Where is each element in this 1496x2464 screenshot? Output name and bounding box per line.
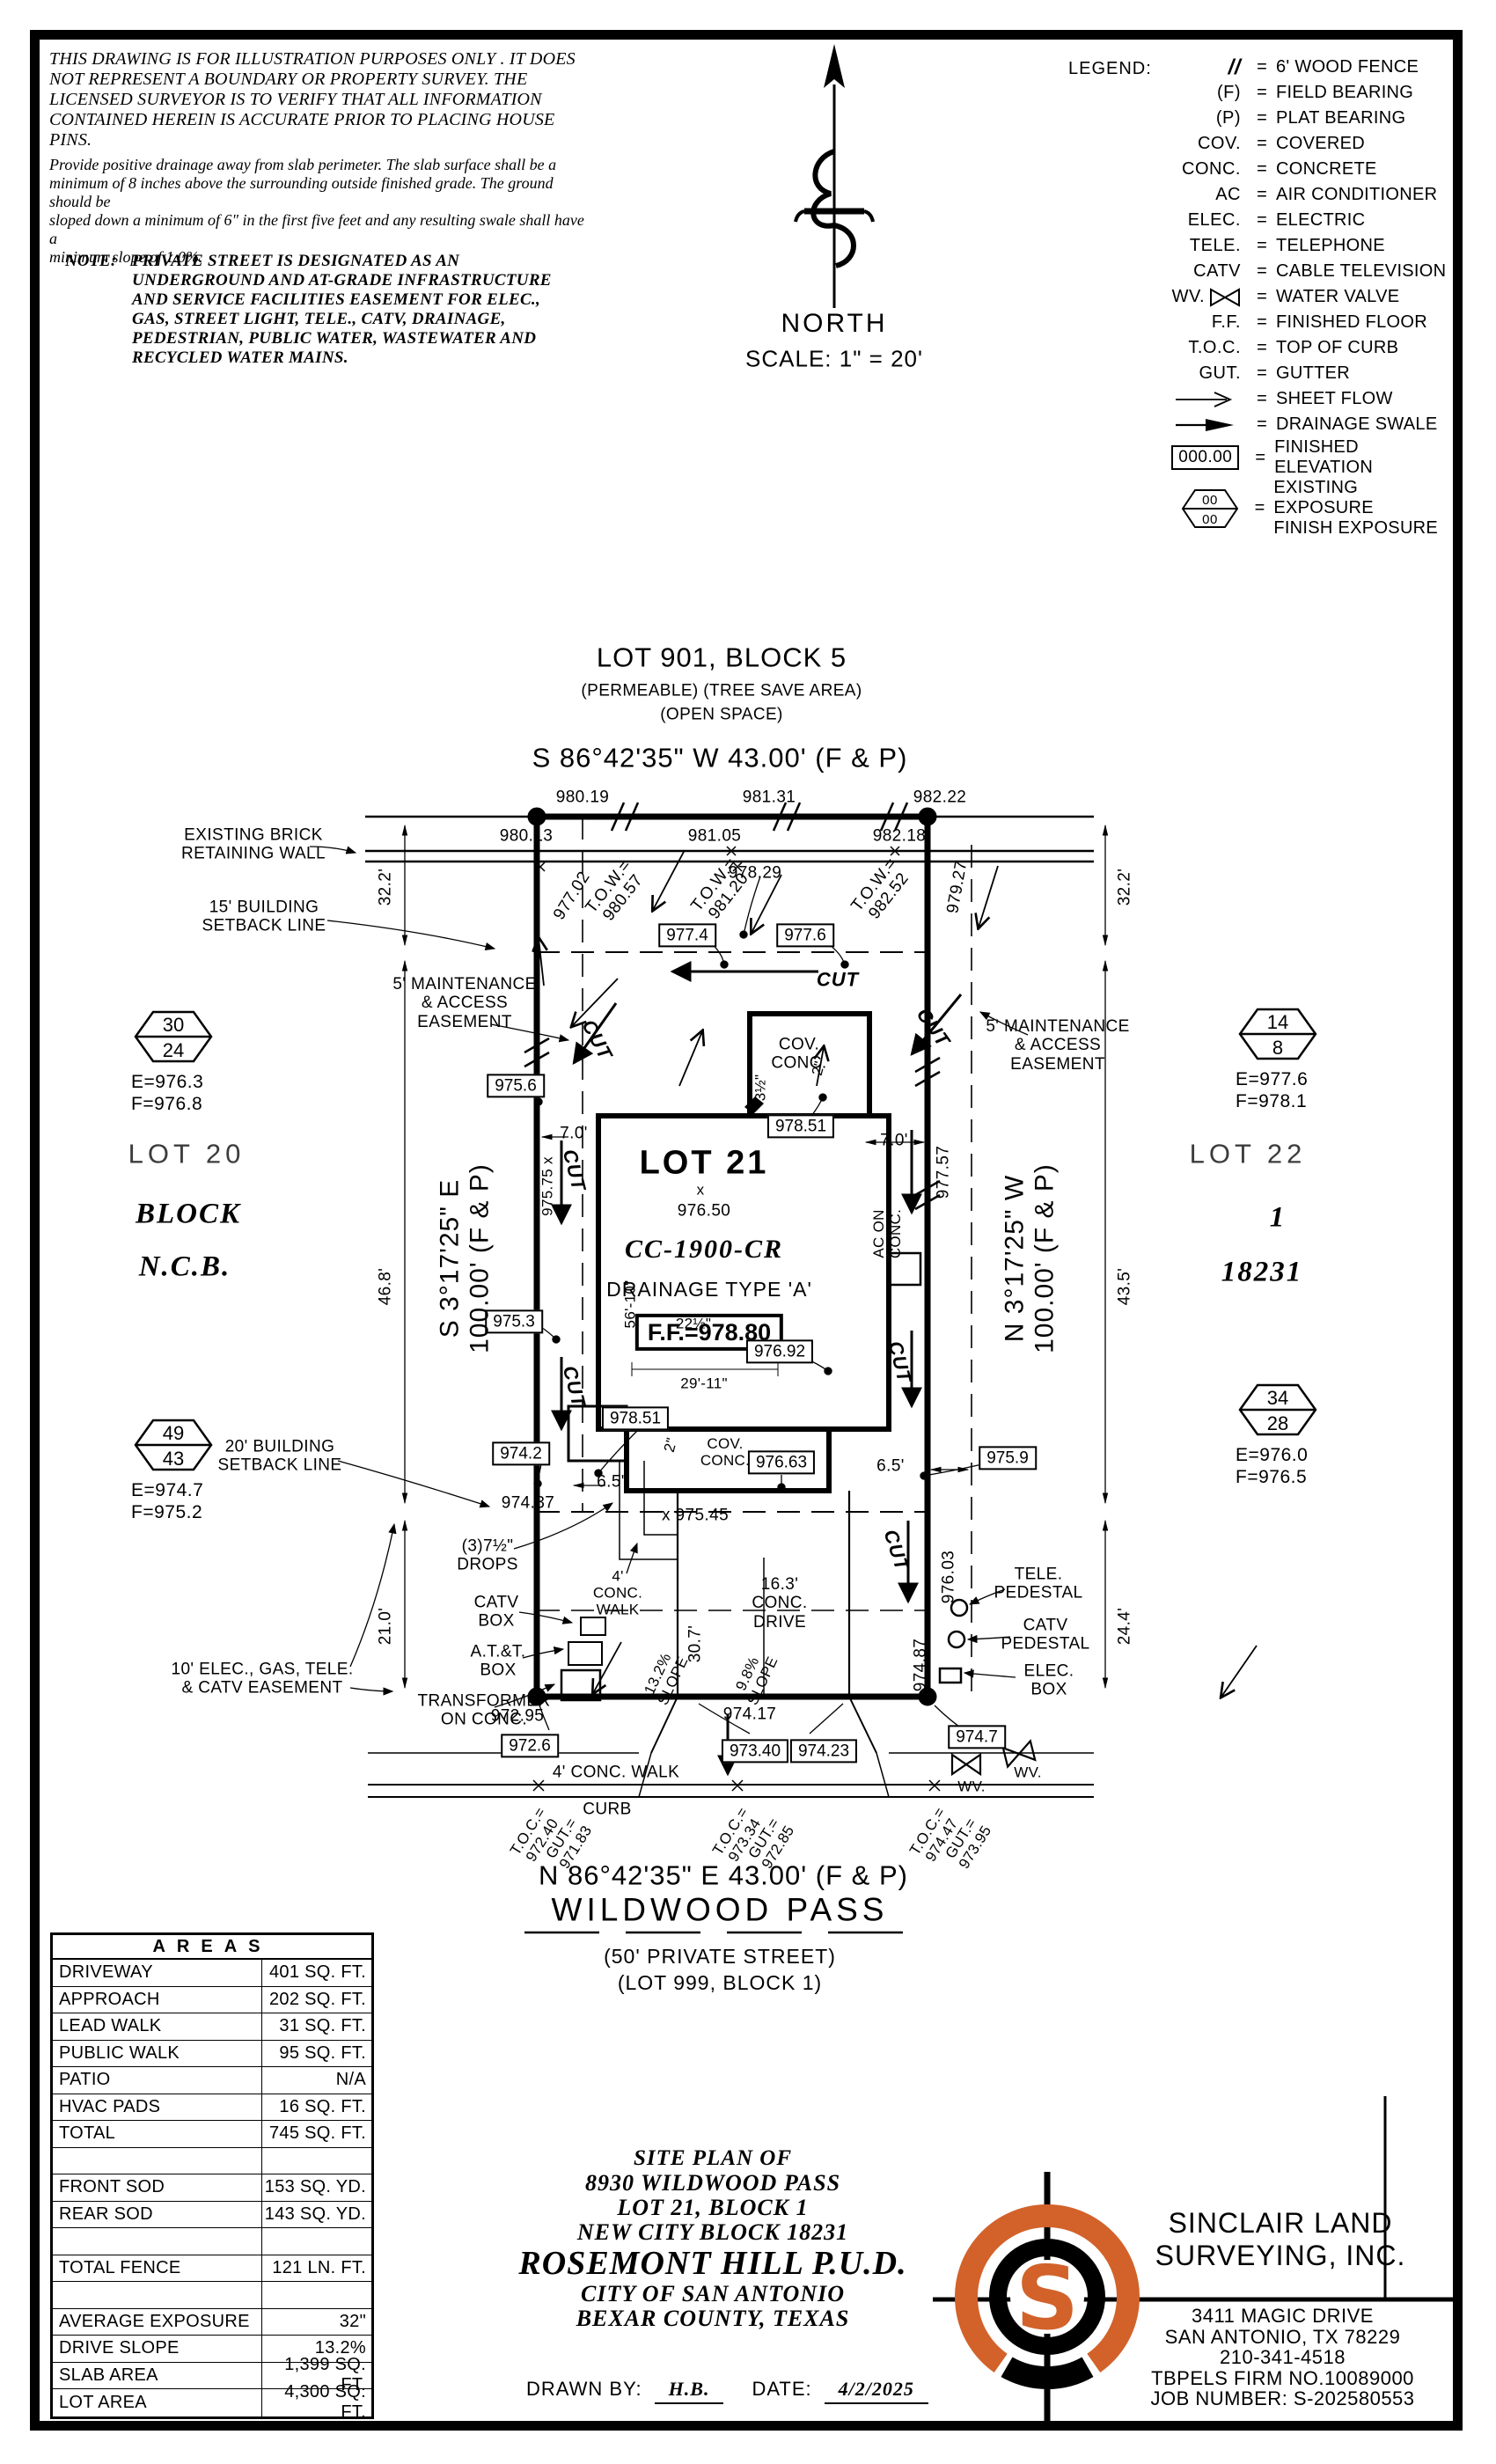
areas-row: APPROACH202 SQ. FT.	[53, 1987, 371, 2014]
company-name: SINCLAIR LAND SURVEYING, INC.	[1131, 2207, 1430, 2272]
legend-title: LEGEND:	[1068, 59, 1152, 79]
exposure-values: E=974.7F=975.2	[131, 1479, 216, 1523]
bearing-front: N 86°42'35" E 43.00' (F & P)	[539, 1861, 908, 1892]
plot-label: 974.17	[723, 1705, 777, 1723]
legend-item: (P)=PLAT BEARING	[1063, 106, 1461, 131]
exposure-values: E=976.3F=976.8	[131, 1071, 216, 1115]
legend-symbol-text: (P)	[1063, 108, 1248, 128]
legend-symbol-text: T.O.C.	[1063, 338, 1248, 358]
plot-label: A.T.&T. BOX	[471, 1643, 526, 1681]
legend-symbol-text: F.F.	[1063, 312, 1248, 333]
date-value: 4/2/2025	[825, 2378, 928, 2404]
areas-table: AREAS DRIVEWAY401 SQ. FT.APPROACH202 SQ.…	[50, 1932, 374, 2419]
legend-item: 0000=EXISTING EXPOSURE FINISH EXPOSURE	[1063, 478, 1461, 539]
plot-label: 977.6	[776, 923, 834, 947]
plot-label: 30.7'	[686, 1625, 704, 1663]
legend-item: GUT.=GUTTER	[1063, 361, 1461, 386]
areas-row: FRONT SOD153 SQ. YD.	[53, 2174, 371, 2202]
note-line: UNDERGROUND AND AT-GRADE INFRASTRUCTURE	[132, 271, 552, 290]
areas-row-label	[53, 2282, 262, 2308]
note-block: NOTE: PRIVATE STREET IS DESIGNATED AS AN…	[65, 252, 593, 368]
svg-text:43: 43	[163, 1448, 184, 1470]
svg-text:24: 24	[163, 1039, 184, 1061]
disclaimer: THIS DRAWING IS FOR ILLUSTRATION PURPOSE…	[49, 49, 595, 267]
legend-symbol-arrow-filled	[1063, 416, 1248, 434]
areas-row-value: 4,300 SQ. FT.	[262, 2382, 371, 2423]
legend-equals: =	[1248, 389, 1276, 409]
legend-label: FINISHED ELEVATION	[1274, 437, 1461, 478]
company-address: 3411 MAGIC DRIVESAN ANTONIO, TX 78229210…	[1131, 2306, 1434, 2409]
areas-table-title: AREAS	[53, 1935, 371, 1960]
plot-label: 972.6	[501, 1734, 559, 1757]
legend-label: SHEET FLOW	[1276, 389, 1393, 409]
bearing-west: S 3°17'25" E 100.00' (F & P)	[435, 1163, 494, 1353]
company-address-line: 210-341-4518	[1131, 2347, 1434, 2368]
legend-item: =SHEET FLOW	[1063, 386, 1461, 412]
plot-label: 5' MAINTENANCE & ACCESS EASEMENT	[986, 1017, 1129, 1074]
plot-label: 32.2'	[376, 869, 394, 906]
plot-label: CUT	[817, 970, 859, 992]
disclaimer-line: Provide positive drainage away from slab…	[49, 156, 595, 174]
wood-fence-icon: //	[1228, 55, 1241, 80]
plot-label: 978.51	[602, 1406, 669, 1430]
legend-equals: =	[1248, 185, 1276, 205]
note-line: PEDESTRIAN, PUBLIC WATER, WASTEWATER AND	[132, 329, 552, 348]
plot-label: 975.75 x	[539, 1156, 555, 1216]
plot-label: 976.50	[678, 1201, 731, 1220]
areas-row-value: 401 SQ. FT.	[262, 1962, 371, 1983]
bearing-rear: S 86°42'35" W 43.00' (F & P)	[532, 744, 908, 774]
exposure-hex-icon: 49 43	[133, 1417, 214, 1473]
water-valve-icon	[1209, 287, 1241, 308]
plot-label: 21.0'	[376, 1608, 394, 1646]
scale-label: SCALE: 1" = 20'	[745, 346, 923, 371]
plot-label: 975.6	[487, 1074, 545, 1097]
exposure-marker-30-24: 30 24 E=976.3F=976.8	[131, 1008, 216, 1115]
plot-label: 18231	[1221, 1257, 1303, 1289]
areas-row: PUBLIC WALK95 SQ. FT.	[53, 2041, 371, 2068]
areas-row-label: DRIVEWAY	[53, 1960, 262, 1986]
plot-label: 5' MAINTENANCE & ACCESS EASEMENT	[392, 975, 536, 1031]
note-line: AND SERVICE FACILITIES EASEMENT FOR ELEC…	[132, 290, 552, 310]
areas-row: DRIVEWAY401 SQ. FT.	[53, 1960, 371, 1987]
legend-symbol-text: COV.	[1063, 134, 1248, 154]
legend-item: 000.00=FINISHED ELEVATION	[1063, 437, 1461, 478]
site-plan-page: S THIS DRAWING IS FOR ILLUSTRATION PURPO…	[0, 0, 1496, 2464]
plot-label: 43.5'	[1115, 1268, 1133, 1306]
areas-row-value: 153 SQ. YD.	[262, 2177, 371, 2197]
disclaimer-paragraph-1: THIS DRAWING IS FOR ILLUSTRATION PURPOSE…	[49, 49, 595, 150]
legend-item: (F)=FIELD BEARING	[1063, 80, 1461, 106]
legend-label: TELEPHONE	[1276, 236, 1385, 256]
legend-label: PLAT BEARING	[1276, 108, 1405, 128]
plot-label: 32.2'	[1115, 869, 1133, 906]
areas-row-label: PUBLIC WALK	[53, 2041, 262, 2067]
svg-text:34: 34	[1267, 1387, 1288, 1409]
legend-equals: =	[1246, 498, 1274, 518]
plot-label: 22½"	[676, 1315, 711, 1331]
legend-symbol-box: 000.00	[1063, 445, 1246, 470]
plot-label: TELE. PEDESTAL	[994, 1566, 1082, 1603]
title-block-line: SITE PLAN OF	[475, 2145, 950, 2171]
plot-label: 7.0'	[560, 1124, 588, 1142]
areas-row: LOT AREA4,300 SQ. FT.	[53, 2389, 371, 2416]
plot-label: 4' CONC. WALK	[553, 1763, 679, 1781]
plot-label: 972.95	[491, 1706, 545, 1725]
legend-item: =DRAINAGE SWALE	[1063, 412, 1461, 437]
exposure-marker-34-28: 34 28 E=976.0F=976.5	[1236, 1382, 1320, 1488]
areas-row-label: AVERAGE EXPOSURE	[53, 2309, 262, 2336]
svg-text:8: 8	[1272, 1037, 1283, 1059]
legend-item: WV.=WATER VALVE	[1063, 284, 1461, 310]
areas-row-label	[53, 2228, 262, 2255]
legend-symbol-hex: 0000	[1063, 488, 1246, 530]
legend-item: F.F.=FINISHED FLOOR	[1063, 310, 1461, 335]
lot-901-title: LOT 901, BLOCK 5	[597, 643, 847, 674]
legend-equals: =	[1248, 338, 1276, 358]
areas-row-value: 143 SQ. YD.	[262, 2204, 371, 2225]
areas-row-label: DRIVE SLOPE	[53, 2336, 262, 2362]
lot-20-title: LOT 20	[128, 1140, 246, 1170]
areas-row-label: TOTAL	[53, 2121, 262, 2147]
plot-label: 24.4'	[1115, 1608, 1133, 1646]
areas-row-label: APPROACH	[53, 1987, 262, 2013]
areas-row-label: PATIO	[53, 2067, 262, 2094]
north-label: NORTH	[781, 309, 887, 339]
legend-label: EXISTING EXPOSURE FINISH EXPOSURE	[1273, 478, 1461, 539]
areas-row: TOTAL745 SQ. FT.	[53, 2121, 371, 2148]
legend-equals: =	[1248, 134, 1276, 154]
legend-equals: =	[1246, 448, 1274, 468]
lot-21-title: LOT 21	[640, 1145, 769, 1183]
plot-label: BLOCK	[136, 1199, 241, 1231]
lot-22-title: LOT 22	[1190, 1140, 1307, 1170]
plot-label: 56'-10"	[621, 1280, 638, 1329]
areas-row-value: 202 SQ. FT.	[262, 1990, 371, 2010]
plot-label: x	[697, 1181, 705, 1198]
note-line: GAS, STREET LIGHT, TELE., CATV, DRAINAGE…	[132, 310, 552, 329]
legend-item: COV.=COVERED	[1063, 131, 1461, 157]
plot-label: 974.87	[911, 1639, 929, 1692]
plan-code: CC-1900-CR	[625, 1235, 783, 1265]
legend-equals: =	[1248, 210, 1276, 231]
areas-row: TOTAL FENCE121 LN. FT.	[53, 2255, 371, 2283]
title-block-line: NEW CITY BLOCK 18231	[475, 2220, 950, 2245]
plot-label: 6.5'	[597, 1472, 625, 1491]
finished-elevation-box: 000.00	[1171, 445, 1239, 470]
legend-equals: =	[1248, 83, 1276, 103]
legend-item: ELEC.=ELECTRIC	[1063, 208, 1461, 233]
plot-label: CURB	[583, 1800, 631, 1818]
plot-label: 981.31	[743, 788, 796, 806]
legend-equals: =	[1248, 414, 1276, 435]
areas-row-label: TOTAL FENCE	[53, 2255, 262, 2282]
setback-20-label: 20' BUILDING SETBACK LINE	[217, 1438, 341, 1476]
plot-label: (50' PRIVATE STREET)	[604, 1946, 836, 1969]
areas-row-label: SLAB AREA	[53, 2363, 262, 2389]
plot-label: WV.	[957, 1778, 985, 1794]
plot-label: 46.8'	[376, 1268, 394, 1306]
plot-label: 980.19	[556, 788, 610, 806]
note-label: NOTE:	[65, 252, 132, 368]
note-line: PRIVATE STREET IS DESIGNATED AS AN	[132, 252, 552, 271]
plot-label: 16.3' CONC. DRIVE	[752, 1575, 807, 1632]
plot-label: 977.57	[934, 1146, 952, 1199]
retaining-wall-label: EXISTING BRICK RETAINING WALL	[181, 826, 326, 864]
bearing-east: N 3°17'25" W 100.00' (F & P)	[1000, 1163, 1059, 1353]
plot-label: COV. CONC.	[700, 1435, 750, 1469]
legend-label: DRAINAGE SWALE	[1276, 414, 1438, 435]
setback-15-label: 15' BUILDING SETBACK LINE	[202, 898, 326, 936]
areas-row	[53, 2228, 371, 2255]
plot-label: 982.22	[913, 788, 967, 806]
disclaimer-line: minimum of 8 inches above the surroundin…	[49, 174, 595, 211]
legend-equals: =	[1248, 363, 1276, 384]
legend-symbol-text: CONC.	[1063, 159, 1248, 180]
title-block-line: LOT 21, BLOCK 1	[475, 2196, 950, 2220]
legend-symbol-text: CATV	[1063, 261, 1248, 282]
drainage-swale-icon	[1176, 416, 1241, 434]
areas-row-value: 32"	[262, 2312, 371, 2332]
company-address-line: 3411 MAGIC DRIVE	[1131, 2306, 1434, 2327]
street-name: WILDWOOD PASS	[552, 1891, 889, 1927]
areas-row-label: LOT AREA	[53, 2389, 262, 2416]
drawn-by-row: DRAWN BY: H.B. DATE: 4/2/2025	[526, 2378, 928, 2404]
plot-label: 7.0'	[880, 1131, 908, 1149]
legend-symbol-arrow-open	[1063, 391, 1248, 408]
plot-label: 978.51	[767, 1114, 834, 1138]
company-address-line: SAN ANTONIO, TX 78229	[1131, 2327, 1434, 2348]
areas-row-value: 95 SQ. FT.	[262, 2043, 371, 2064]
disclaimer-line: LICENSED SURVEYOR IS TO VERIFY THAT ALL …	[49, 90, 595, 110]
legend-symbol-text: TELE.	[1063, 236, 1248, 256]
plot-label: CATV PEDESTAL	[1001, 1617, 1089, 1654]
plot-label: AC ON CONC.	[870, 1209, 904, 1258]
title-block-line: BEXAR COUNTY, TEXAS	[475, 2306, 950, 2331]
plot-label: (OPEN SPACE)	[660, 705, 783, 723]
legend-symbol-text: (F)	[1063, 83, 1248, 103]
legend-equals: =	[1248, 312, 1276, 333]
areas-row-value: 16 SQ. FT.	[262, 2097, 371, 2117]
areas-row-label: REAR SOD	[53, 2202, 262, 2228]
plot-label: (3)7½" DROPS	[457, 1537, 518, 1575]
legend-label: GUTTER	[1276, 363, 1350, 384]
areas-row-label: FRONT SOD	[53, 2174, 262, 2201]
drawn-by-label: DRAWN BY:	[526, 2378, 642, 2401]
plot-label: 980.13	[500, 826, 554, 845]
legend-label: FIELD BEARING	[1276, 83, 1413, 103]
legend-label: WATER VALVE	[1276, 287, 1399, 307]
plot-label: 4' CONC. WALK	[593, 1567, 642, 1617]
plot-label: 1	[1270, 1202, 1287, 1235]
disclaimer-line: NOT REPRESENT A BOUNDARY OR PROPERTY SUR…	[49, 70, 595, 90]
plot-label: 29'-11"	[680, 1375, 728, 1391]
exposure-hex-icon: 30 24	[133, 1008, 214, 1065]
plot-label: 976.63	[748, 1450, 815, 1474]
svg-text:28: 28	[1267, 1412, 1288, 1434]
legend-rows: //=6' WOOD FENCE(F)=FIELD BEARING(P)=PLA…	[1063, 55, 1461, 539]
areas-row	[53, 2148, 371, 2175]
legend-symbol-valve: WV.	[1063, 287, 1248, 308]
svg-text:14: 14	[1267, 1011, 1288, 1033]
disclaimer-line: CONTAINED HEREIN IS ACCURATE PRIOR TO PL…	[49, 110, 595, 150]
sheet-flow-icon	[1176, 391, 1241, 408]
drawn-by-value: H.B.	[655, 2378, 724, 2404]
legend-item: TELE.=TELEPHONE	[1063, 233, 1461, 259]
areas-row: HVAC PADS16 SQ. FT.	[53, 2094, 371, 2122]
legend-item: AC=AIR CONDITIONER	[1063, 182, 1461, 208]
legend-equals: =	[1248, 57, 1276, 77]
svg-text:30: 30	[163, 1014, 184, 1036]
legend-symbol-text: GUT.	[1063, 363, 1248, 384]
plot-label: 973.40	[722, 1739, 788, 1763]
water-valve-label: WV.	[1172, 287, 1205, 307]
areas-table-body: DRIVEWAY401 SQ. FT.APPROACH202 SQ. FT.LE…	[53, 1960, 371, 2416]
exposure-marker-49-43: 49 43 E=974.7F=975.2	[131, 1417, 216, 1523]
plot-label: CATV BOX	[474, 1594, 519, 1632]
legend-label: 6' WOOD FENCE	[1276, 57, 1419, 77]
exposure-values: E=977.6F=978.1	[1236, 1068, 1320, 1112]
legend-label: AIR CONDITIONER	[1276, 185, 1437, 205]
plot-label: 974.23	[790, 1739, 857, 1763]
note-text: PRIVATE STREET IS DESIGNATED AS ANUNDERG…	[132, 252, 552, 368]
plot-label: 981.05	[688, 826, 742, 845]
plot-label: ELEC. BOX	[1024, 1662, 1074, 1700]
legend-label: ELECTRIC	[1276, 210, 1365, 231]
areas-row: AVERAGE EXPOSURE32"	[53, 2309, 371, 2336]
legend-label: COVERED	[1276, 134, 1365, 154]
plot-label: 974.7	[948, 1725, 1006, 1749]
areas-row-label	[53, 2148, 262, 2174]
plot-label: x 975.45	[662, 1506, 729, 1524]
plot-label: 976.03	[939, 1551, 957, 1604]
legend-equals: =	[1248, 159, 1276, 180]
legend-item: CONC.=CONCRETE	[1063, 157, 1461, 182]
title-block: SITE PLAN OF8930 WILDWOOD PASSLOT 21, BL…	[475, 2145, 950, 2331]
disclaimer-paragraph-2: Provide positive drainage away from slab…	[49, 156, 595, 267]
exposure-marker-14-8: 14 8 E=977.6F=978.1	[1236, 1006, 1320, 1112]
areas-row-value: N/A	[262, 2070, 371, 2090]
legend: LEGEND: //=6' WOOD FENCE(F)=FIELD BEARIN…	[1063, 55, 1461, 539]
svg-text:00: 00	[1202, 493, 1218, 508]
legend-label: CABLE TELEVISION	[1276, 261, 1446, 282]
legend-equals: =	[1248, 236, 1276, 256]
plot-label: 974.37	[502, 1493, 555, 1512]
legend-symbol-text: ELEC.	[1063, 210, 1248, 231]
plot-label: 3½"	[752, 1074, 768, 1102]
company-address-line: TBPELS FIRM NO.10089000	[1131, 2368, 1434, 2389]
legend-label: TOP OF CURB	[1276, 338, 1398, 358]
plot-label: (LOT 999, BLOCK 1)	[618, 1972, 822, 1995]
areas-row	[53, 2282, 371, 2309]
plot-label: (PERMEABLE) (TREE SAVE AREA)	[581, 681, 862, 700]
legend-item: T.O.C.=TOP OF CURB	[1063, 335, 1461, 361]
svg-text:49: 49	[163, 1422, 184, 1444]
areas-row-value: 31 SQ. FT.	[262, 2016, 371, 2036]
svg-text:00: 00	[1202, 512, 1218, 527]
areas-row: REAR SOD143 SQ. YD.	[53, 2202, 371, 2229]
legend-symbol-text: AC	[1063, 185, 1248, 205]
plot-label: 6.5'	[876, 1456, 905, 1475]
plot-label: 975.9	[979, 1446, 1037, 1470]
plot-label: N.C.B.	[139, 1251, 231, 1284]
exposure-hex-icon: 34 28	[1237, 1382, 1318, 1438]
legend-label: FINISHED FLOOR	[1276, 312, 1427, 333]
areas-row-value: 121 LN. FT.	[262, 2258, 371, 2278]
exposure-values: E=976.0F=976.5	[1236, 1444, 1320, 1488]
areas-row: PATION/A	[53, 2067, 371, 2094]
title-block-line: 8930 WILDWOOD PASS	[475, 2171, 950, 2196]
title-block-line: ROSEMONT HILL P.U.D.	[475, 2245, 950, 2282]
date-label: DATE:	[752, 2378, 811, 2401]
disclaimer-line: sloped down a minimum of 6" in the first…	[49, 211, 595, 248]
exposure-hex-icon: 0000	[1181, 488, 1239, 530]
exposure-hex-icon: 14 8	[1237, 1006, 1318, 1062]
areas-row-value: 745 SQ. FT.	[262, 2123, 371, 2144]
areas-row: LEAD WALK31 SQ. FT.	[53, 2013, 371, 2041]
plot-label: 977.4	[658, 923, 716, 947]
utility-easement-label: 10' ELEC., GAS, TELE. & CATV EASEMENT	[171, 1661, 353, 1698]
company-address-line: JOB NUMBER: S-202580553	[1131, 2388, 1434, 2409]
legend-equals: =	[1248, 108, 1276, 128]
plot-label: 982.18	[873, 826, 927, 845]
legend-item: CATV=CABLE TELEVISION	[1063, 259, 1461, 284]
plot-label: 974.2	[492, 1441, 550, 1465]
legend-label: CONCRETE	[1276, 159, 1377, 180]
areas-row-label: LEAD WALK	[53, 2013, 262, 2040]
legend-equals: =	[1248, 261, 1276, 282]
legend-equals: =	[1248, 287, 1276, 307]
plot-label: WV.	[1014, 1764, 1041, 1780]
note-line: RECYCLED WATER MAINS.	[132, 348, 552, 368]
disclaimer-line: THIS DRAWING IS FOR ILLUSTRATION PURPOSE…	[49, 49, 595, 70]
plot-label: 976.92	[746, 1339, 813, 1363]
title-block-line: CITY OF SAN ANTONIO	[475, 2282, 950, 2306]
areas-row-label: HVAC PADS	[53, 2094, 262, 2121]
